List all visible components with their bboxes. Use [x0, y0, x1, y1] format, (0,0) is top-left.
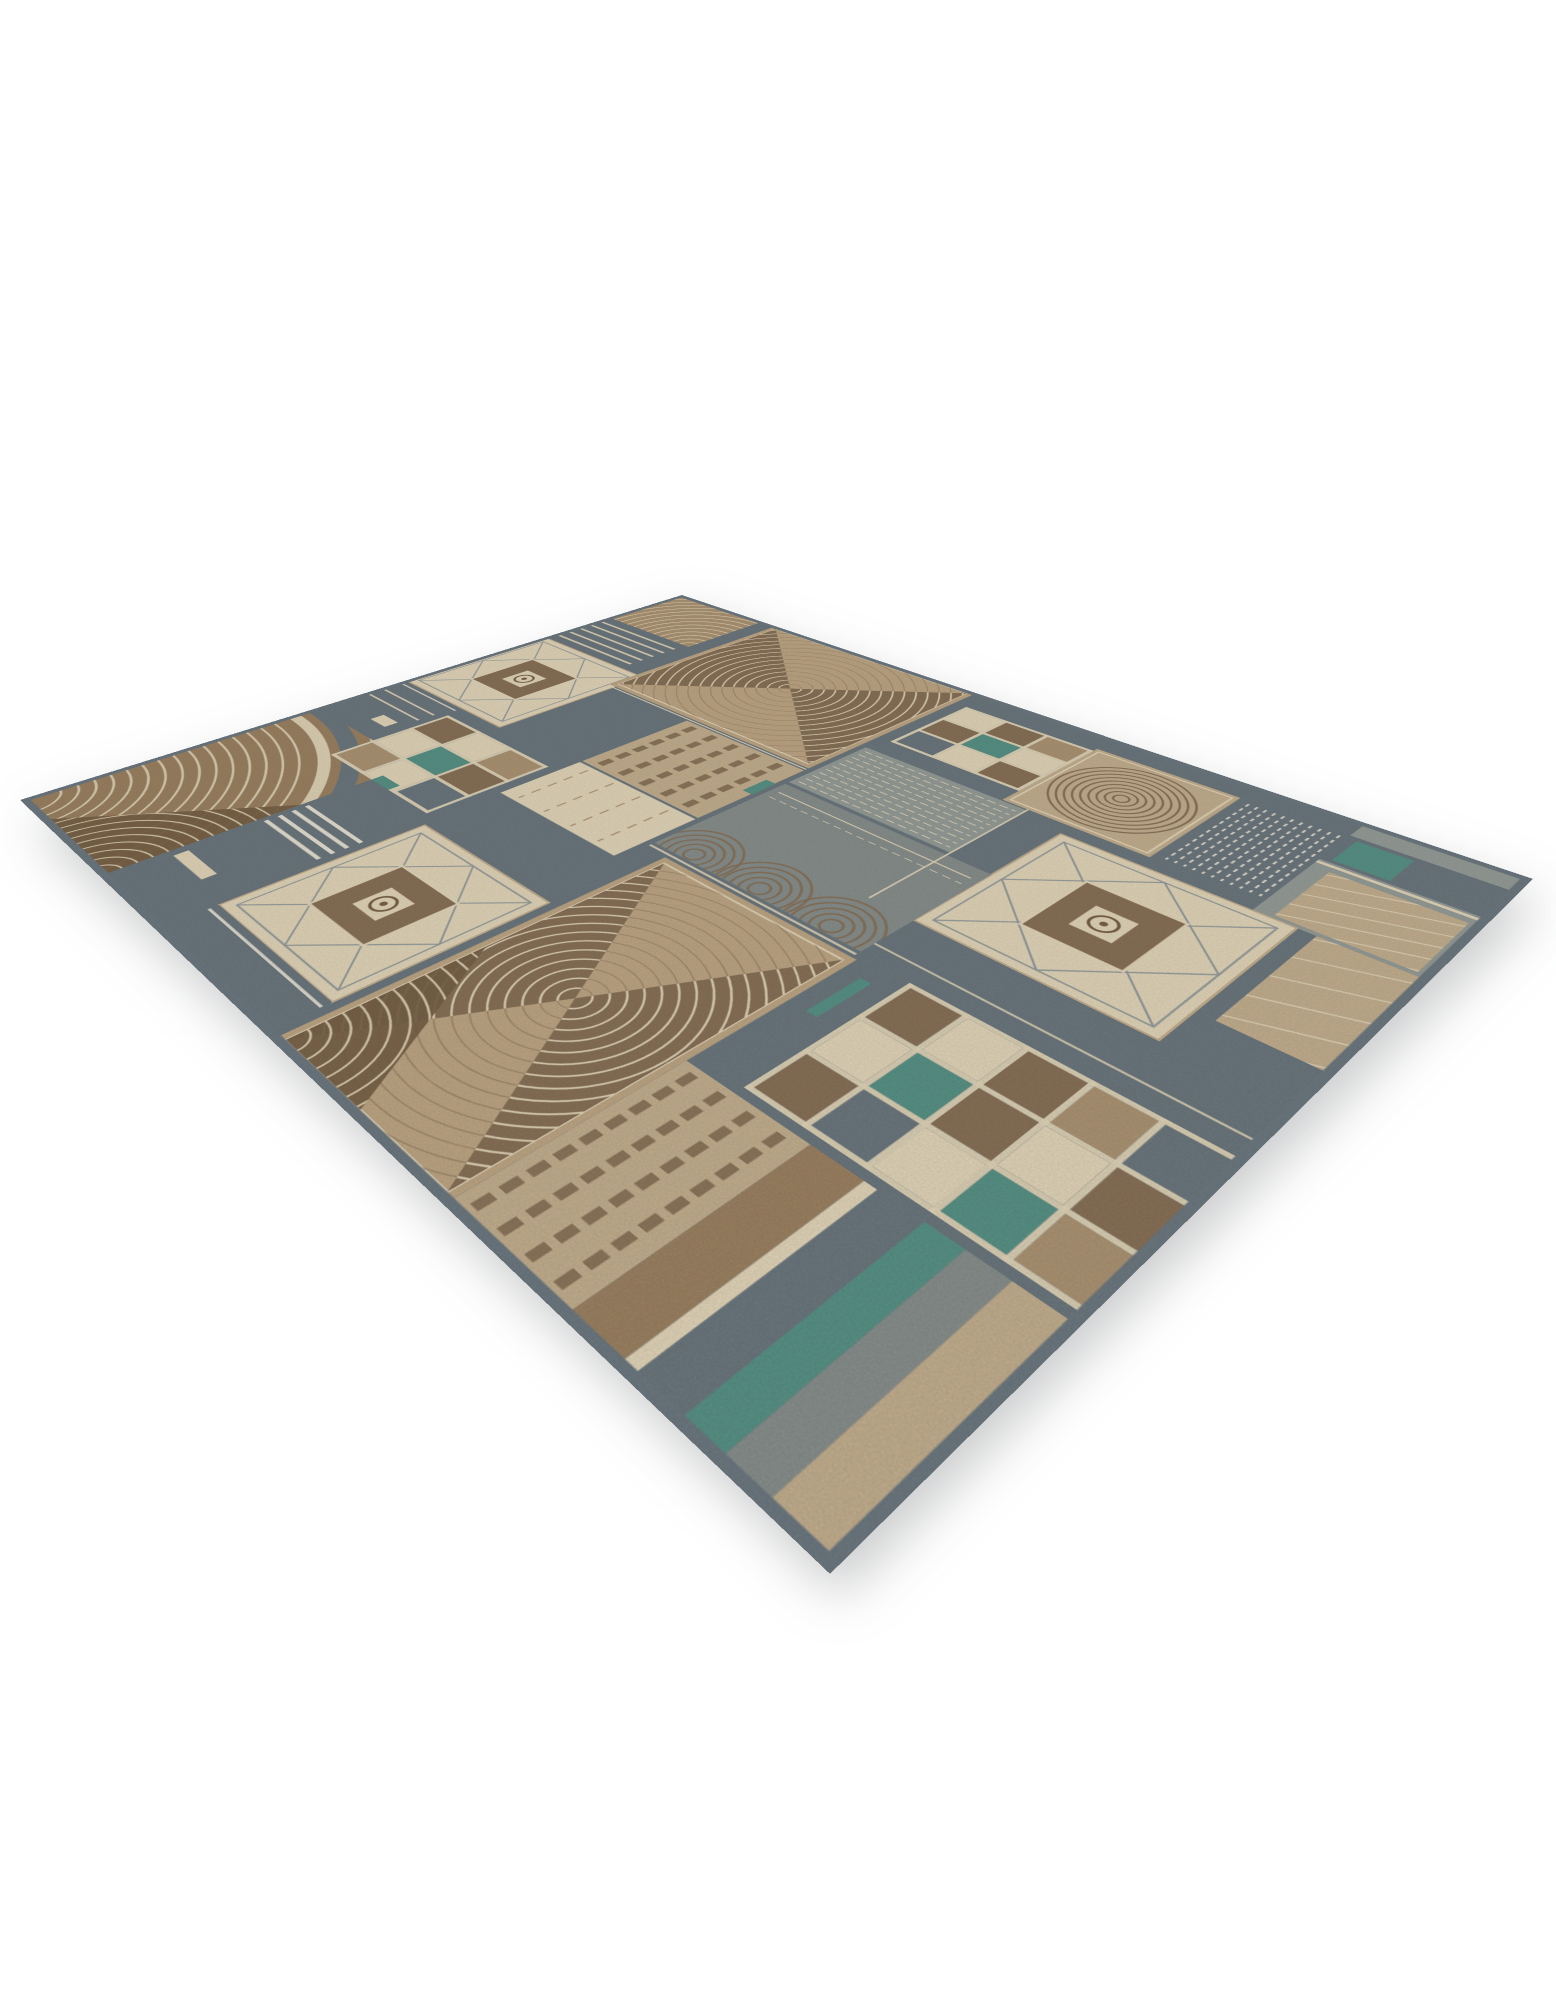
area-rug-image — [20, 595, 1533, 1574]
product-photo — [0, 0, 1556, 2000]
rug-shadow-wrap — [0, 0, 1556, 2000]
